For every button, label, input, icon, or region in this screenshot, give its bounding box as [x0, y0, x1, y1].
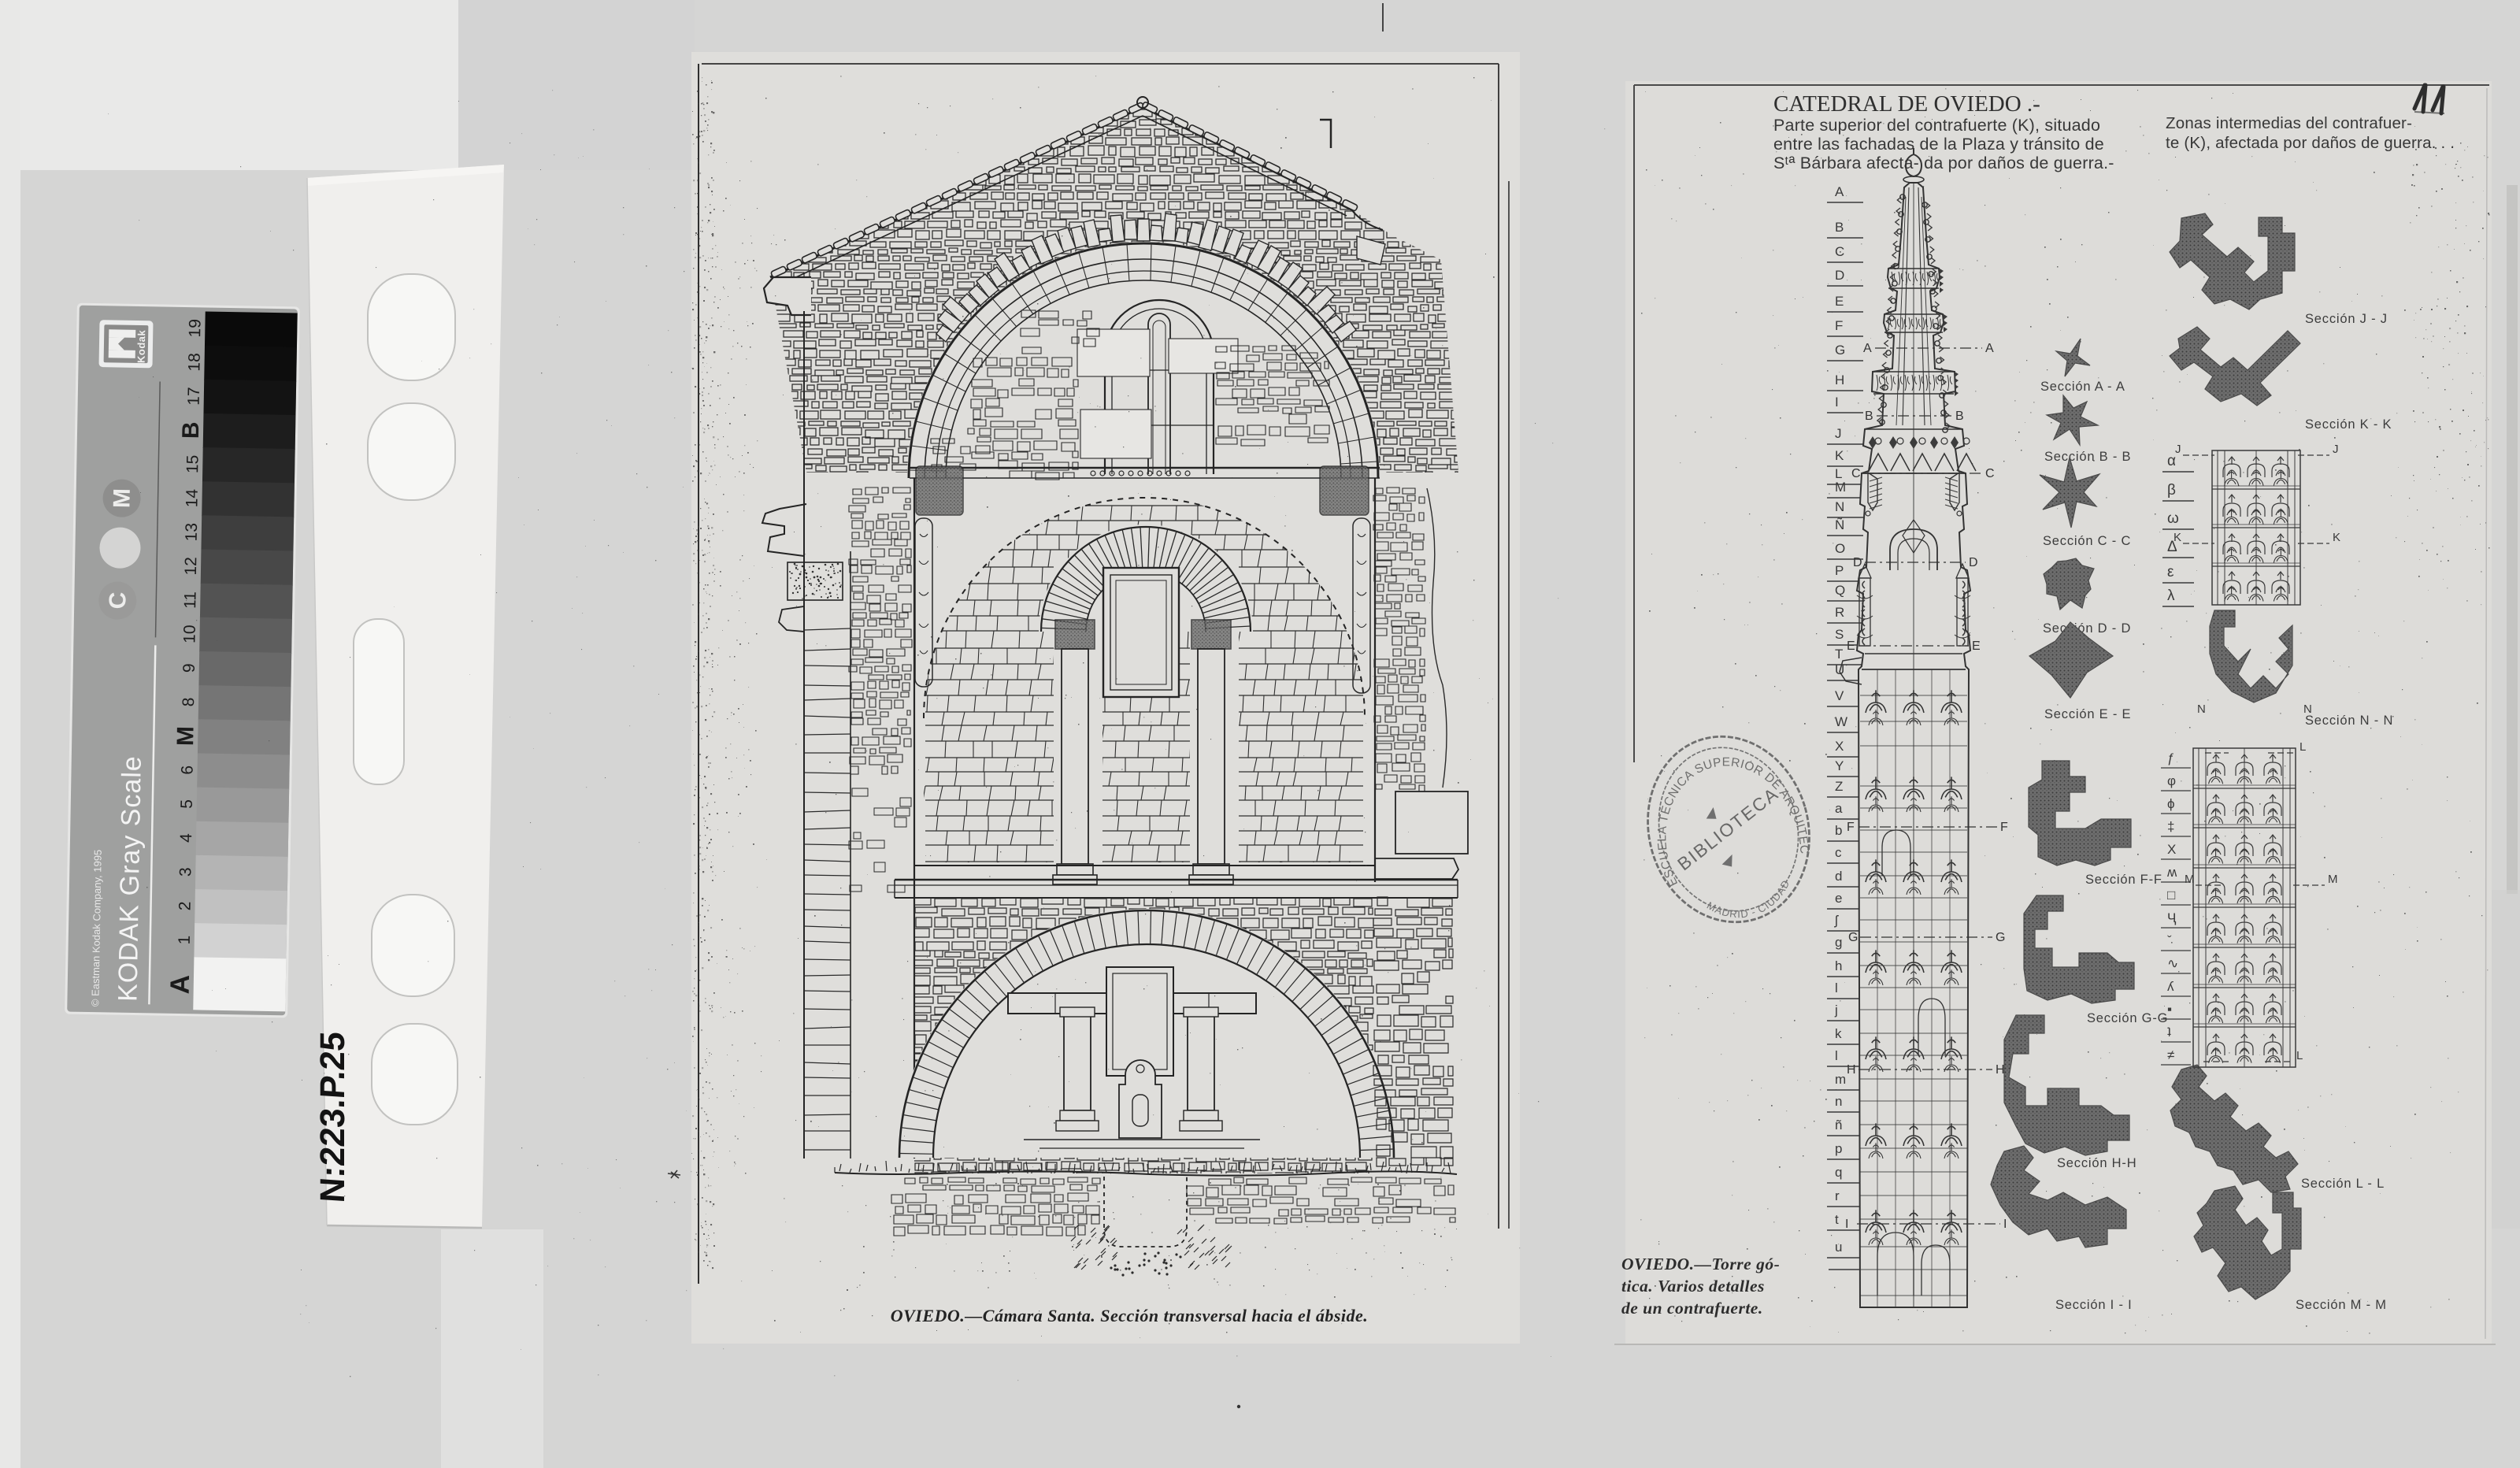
svg-text:8: 8: [180, 697, 198, 706]
svg-text:ʎ: ʎ: [2167, 979, 2174, 994]
svg-text:K: K: [1835, 448, 1844, 463]
svg-text:OVIEDO.—Torre gó-: OVIEDO.—Torre gó-: [1621, 1255, 1780, 1273]
svg-text:M: M: [2328, 873, 2338, 886]
svg-text:Sección K - K: Sección K - K: [2305, 417, 2392, 432]
svg-text:F: F: [1835, 318, 1843, 333]
svg-text:W: W: [1835, 714, 1847, 729]
svg-text:λ: λ: [2167, 588, 2175, 604]
svg-text:≠: ≠: [2167, 1047, 2174, 1062]
svg-text:B: B: [178, 421, 204, 439]
svg-text:A: A: [1835, 184, 1844, 199]
svg-text:J: J: [2175, 443, 2181, 456]
svg-text:A: A: [165, 974, 195, 994]
svg-text:Zonas intermedias del contrafu: Zonas intermedias del contrafuer-: [2166, 114, 2412, 132]
svg-text:M: M: [2185, 873, 2195, 886]
svg-text:R: R: [1835, 605, 1844, 620]
svg-text:ʇ: ʇ: [2167, 1025, 2171, 1040]
svg-text:p: p: [1835, 1141, 1842, 1156]
svg-text:G: G: [1996, 931, 2005, 944]
svg-text:Χ: Χ: [2167, 842, 2176, 857]
svg-text:M: M: [109, 488, 135, 509]
svg-text:I: I: [1835, 395, 1839, 410]
svg-text:β: β: [2167, 482, 2176, 499]
svg-text:Kodak: Kodak: [135, 329, 148, 363]
svg-text:c: c: [1835, 845, 1842, 860]
svg-text:H: H: [1847, 1063, 1856, 1077]
svg-text:12: 12: [182, 557, 200, 576]
svg-text:Sección I - I: Sección I - I: [2055, 1298, 2133, 1312]
svg-text:B: B: [1955, 410, 1964, 423]
svg-text:6: 6: [178, 766, 196, 775]
svg-text:b: b: [1835, 823, 1842, 838]
svg-text:q: q: [1835, 1165, 1842, 1180]
svg-text:3: 3: [176, 867, 195, 877]
svg-text:d: d: [1835, 869, 1842, 884]
svg-text:Sección M - M: Sección M - M: [2296, 1298, 2387, 1312]
svg-text:T: T: [1835, 647, 1843, 662]
svg-text:a: a: [1835, 801, 1843, 816]
svg-text:e: e: [1835, 891, 1842, 906]
svg-text:ƒ: ƒ: [2167, 751, 2174, 766]
svg-text:entre las fachadas de la Plaza: entre las fachadas de la Plaza y tránsit…: [1773, 135, 2104, 154]
svg-text:D: D: [1835, 268, 1844, 283]
svg-text:B: B: [1865, 410, 1873, 423]
svg-text:h: h: [1835, 958, 1842, 973]
svg-text:Sección G-G: Sección G-G: [2087, 1011, 2168, 1025]
svg-text:Sección D - D: Sección D - D: [2043, 621, 2131, 636]
svg-text:D: D: [1969, 556, 1978, 569]
svg-text:Sección H-H: Sección H-H: [2057, 1156, 2136, 1170]
svg-text:18: 18: [185, 353, 203, 372]
svg-text:t: t: [1835, 1212, 1839, 1227]
svg-text:C: C: [1851, 467, 1861, 480]
svg-text:H: H: [1996, 1063, 2005, 1077]
svg-text:L: L: [2296, 1049, 2303, 1062]
svg-text:O: O: [1835, 541, 1845, 556]
svg-text:N:223.P.25: N:223.P.25: [313, 1030, 352, 1203]
svg-text:D: D: [1853, 556, 1862, 569]
svg-text:19: 19: [186, 319, 204, 338]
svg-text:S: S: [1835, 627, 1844, 642]
svg-text:k: k: [1835, 1026, 1842, 1041]
svg-text:J: J: [2333, 443, 2339, 456]
svg-text:G: G: [1848, 931, 1858, 944]
svg-text:ϕ: ϕ: [2167, 796, 2175, 811]
svg-text:C: C: [1985, 467, 1995, 480]
svg-text:M: M: [172, 726, 198, 747]
svg-text:l: l: [1835, 1048, 1838, 1063]
svg-text:Sección A - A: Sección A - A: [2040, 380, 2125, 394]
svg-text:Q: Q: [1835, 583, 1845, 598]
svg-text:ˇ: ˇ: [2167, 933, 2172, 948]
svg-text:M: M: [1835, 480, 1846, 495]
svg-text:14: 14: [183, 488, 201, 507]
svg-text:□: □: [2167, 888, 2175, 903]
svg-text:m: m: [1835, 1072, 1846, 1087]
svg-text:‡: ‡: [2167, 819, 2174, 834]
svg-text:E: E: [1835, 294, 1844, 309]
svg-text:Sección B - B: Sección B - B: [2044, 450, 2131, 464]
svg-text:1: 1: [176, 935, 194, 944]
svg-text:13: 13: [183, 523, 201, 542]
svg-text:E: E: [1972, 639, 1981, 653]
svg-text:φ: φ: [2167, 773, 2176, 788]
svg-text:OVIEDO.—Cámara Santa. Sección: OVIEDO.—Cámara Santa. Sección transversa…: [891, 1306, 1369, 1325]
svg-text:Sección J - J: Sección J - J: [2305, 312, 2388, 326]
svg-text:Ҷ: Ҷ: [2167, 910, 2177, 925]
svg-text:CATEDRAL DE OVIEDO .-: CATEDRAL DE OVIEDO .-: [1773, 91, 2040, 117]
svg-text:Ñ: Ñ: [1835, 517, 1844, 532]
svg-text:4: 4: [177, 833, 195, 843]
svg-text:u: u: [1835, 1240, 1842, 1255]
svg-text:l: l: [1835, 981, 1838, 995]
svg-text:n: n: [1835, 1094, 1842, 1109]
svg-text:Sección C - C: Sección C - C: [2043, 534, 2131, 548]
svg-text:Parte superior del contrafuert: Parte superior del contrafuerte (K), sit…: [1773, 116, 2100, 135]
svg-text:H: H: [1835, 373, 1844, 387]
svg-text:N: N: [1835, 499, 1844, 514]
svg-text:r: r: [1835, 1188, 1840, 1203]
svg-text:ω: ω: [2167, 510, 2179, 527]
svg-text:C: C: [1835, 244, 1844, 259]
svg-text:I: I: [2003, 1218, 2007, 1231]
svg-text:j: j: [1834, 1003, 1838, 1018]
svg-text:Y: Y: [1835, 758, 1844, 773]
svg-text:te (K), afectada por daños de: te (K), afectada por daños de guerra. . …: [2166, 134, 2455, 152]
svg-text:Sección L - L: Sección L - L: [2301, 1177, 2385, 1191]
svg-text:17: 17: [185, 387, 203, 406]
svg-text:P: P: [1835, 563, 1844, 578]
svg-text:C: C: [105, 591, 131, 609]
svg-text:I: I: [1845, 1218, 1848, 1231]
svg-text:Sᵗª Bárbara afecta- da po: Sᵗª Bárbara afecta- da por daños de guer…: [1773, 154, 2114, 172]
svg-text:2: 2: [176, 901, 194, 910]
svg-text:Z: Z: [1835, 779, 1843, 794]
svg-text:10: 10: [180, 625, 198, 643]
svg-text:V: V: [1835, 688, 1844, 703]
svg-text:Sección F-F: Sección F-F: [2085, 873, 2162, 887]
svg-text:Sección E - E: Sección E - E: [2044, 707, 2131, 721]
svg-text:K: K: [2333, 531, 2340, 544]
svg-text:N: N: [2303, 702, 2312, 716]
svg-text:N: N: [2197, 702, 2206, 716]
svg-text:∿: ∿: [2167, 956, 2178, 971]
svg-text:X: X: [1835, 739, 1844, 754]
svg-text:ʍ: ʍ: [2167, 865, 2177, 880]
svg-text:9: 9: [180, 663, 198, 673]
svg-text:A: A: [1863, 342, 1872, 355]
svg-text:tica. Varios detalles: tica. Varios detalles: [1621, 1277, 1765, 1296]
svg-text:KODAK Gray Scale: KODAK Gray Scale: [113, 755, 146, 1002]
svg-text:J: J: [1835, 426, 1842, 441]
svg-text:G: G: [1835, 343, 1845, 358]
svg-text:g: g: [1835, 935, 1842, 950]
svg-text:A: A: [1985, 342, 1994, 355]
svg-text:K: K: [2173, 531, 2181, 544]
svg-text:11: 11: [181, 591, 199, 609]
svg-text:ε: ε: [2167, 564, 2174, 580]
svg-text:▪: ▪: [2167, 1002, 2172, 1017]
svg-text:15: 15: [183, 455, 202, 474]
svg-text:L: L: [2299, 740, 2306, 754]
svg-text:5: 5: [178, 799, 196, 809]
svg-text:F: F: [1847, 821, 1855, 834]
svg-text:Sección N - N: Sección N - N: [2305, 714, 2393, 728]
svg-text:F: F: [2000, 821, 2008, 834]
svg-text:B: B: [1835, 220, 1844, 235]
svg-text:de un contrafuerte.: de un contrafuerte.: [1621, 1299, 1763, 1318]
svg-text:ñ: ñ: [1835, 1118, 1842, 1133]
svg-text:E: E: [1847, 639, 1855, 653]
